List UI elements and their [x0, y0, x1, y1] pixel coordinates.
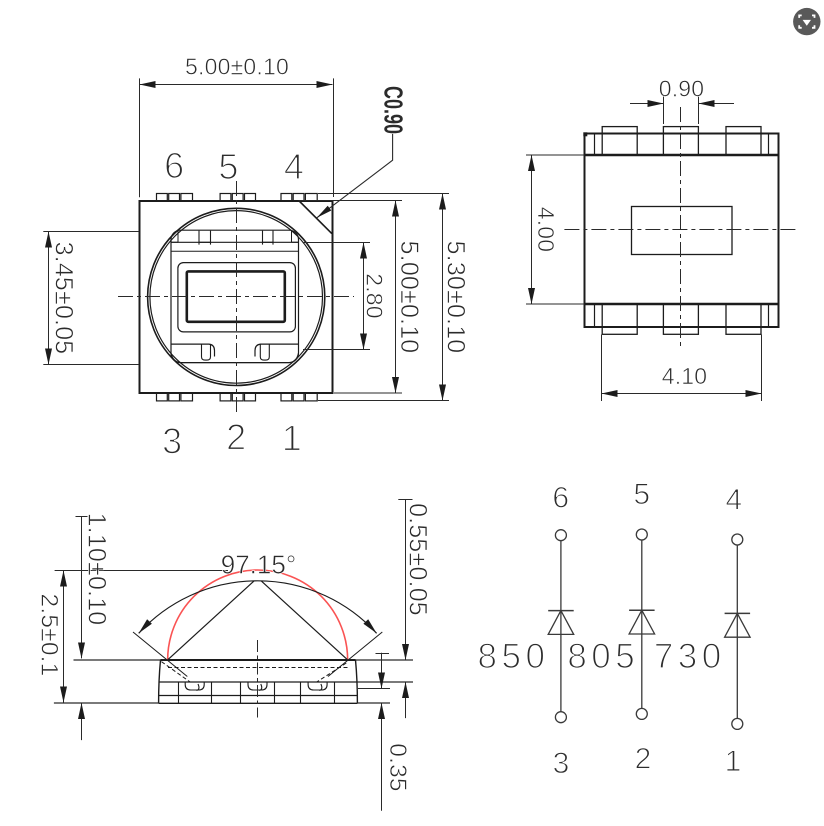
- svg-text:5: 5: [218, 146, 238, 187]
- svg-text:1: 1: [282, 418, 302, 459]
- svg-text:2: 2: [226, 417, 246, 458]
- svg-text:3: 3: [553, 747, 570, 780]
- svg-text:0.90: 0.90: [659, 76, 705, 102]
- svg-text:4.10: 4.10: [662, 363, 708, 389]
- svg-text:850: 850: [478, 637, 550, 676]
- svg-text:6: 6: [552, 482, 569, 515]
- svg-text:2.5±0.1: 2.5±0.1: [36, 594, 63, 677]
- svg-text:3: 3: [162, 421, 182, 462]
- svg-text:1.10±0.10: 1.10±0.10: [82, 513, 110, 626]
- svg-text:4.00: 4.00: [533, 207, 559, 253]
- svg-text:5.00±0.10: 5.00±0.10: [395, 241, 423, 354]
- svg-text:5.00±0.10: 5.00±0.10: [185, 54, 289, 80]
- svg-text:5: 5: [633, 478, 650, 511]
- svg-text:2.80: 2.80: [362, 273, 388, 319]
- svg-text:6: 6: [164, 145, 184, 186]
- svg-text:0.35: 0.35: [384, 743, 411, 791]
- svg-text:5.30±0.10: 5.30±0.10: [442, 241, 470, 354]
- svg-text:3.45±0.05: 3.45±0.05: [50, 242, 78, 355]
- svg-text:4: 4: [726, 484, 743, 517]
- svg-text:C0.90: C0.90: [379, 86, 409, 134]
- svg-text:805: 805: [567, 637, 639, 676]
- svg-text:730: 730: [654, 637, 726, 676]
- svg-text:2: 2: [635, 743, 652, 776]
- svg-text:1: 1: [725, 745, 742, 778]
- svg-text:4: 4: [284, 146, 304, 187]
- svg-text:97.15°: 97.15°: [221, 550, 296, 580]
- svg-text:0.55±0.05: 0.55±0.05: [404, 503, 432, 616]
